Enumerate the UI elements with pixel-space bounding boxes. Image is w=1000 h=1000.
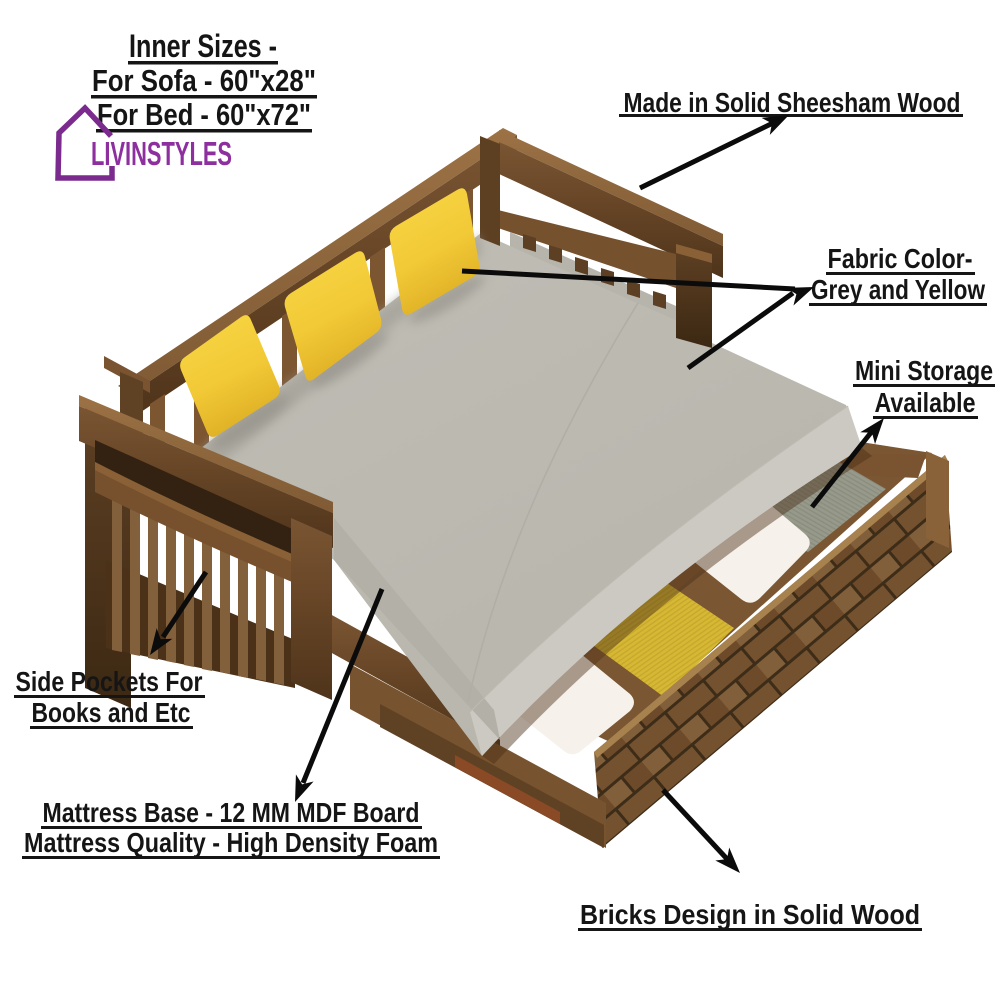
svg-text:Mattress Quality - High Densit: Mattress Quality - High Density Foam <box>24 827 438 858</box>
svg-text:Grey and Yellow: Grey and Yellow <box>811 274 985 305</box>
svg-text:Inner Sizes -: Inner Sizes - <box>129 28 277 64</box>
svg-text:Mattress Base - 12 MM MDF Boar: Mattress Base - 12 MM MDF Board <box>43 797 420 828</box>
svg-text:LIVINSTYLES: LIVINSTYLES <box>91 135 232 172</box>
svg-text:For Sofa - 60"x28": For Sofa - 60"x28" <box>92 63 316 98</box>
svg-text:Available: Available <box>875 387 976 418</box>
svg-text:Fabric Color-: Fabric Color- <box>828 243 973 274</box>
svg-text:For Bed - 60"x72": For Bed - 60"x72" <box>97 97 311 132</box>
svg-text:Made in Solid Sheesham Wood: Made in Solid Sheesham Wood <box>624 87 961 118</box>
svg-text:Side Pockets For: Side Pockets For <box>16 666 203 697</box>
svg-text:Mini Storage: Mini Storage <box>855 355 993 386</box>
svg-text:Books and Etc: Books and Etc <box>32 697 191 728</box>
svg-text:Bricks Design in Solid Wood: Bricks Design in Solid Wood <box>580 899 920 930</box>
